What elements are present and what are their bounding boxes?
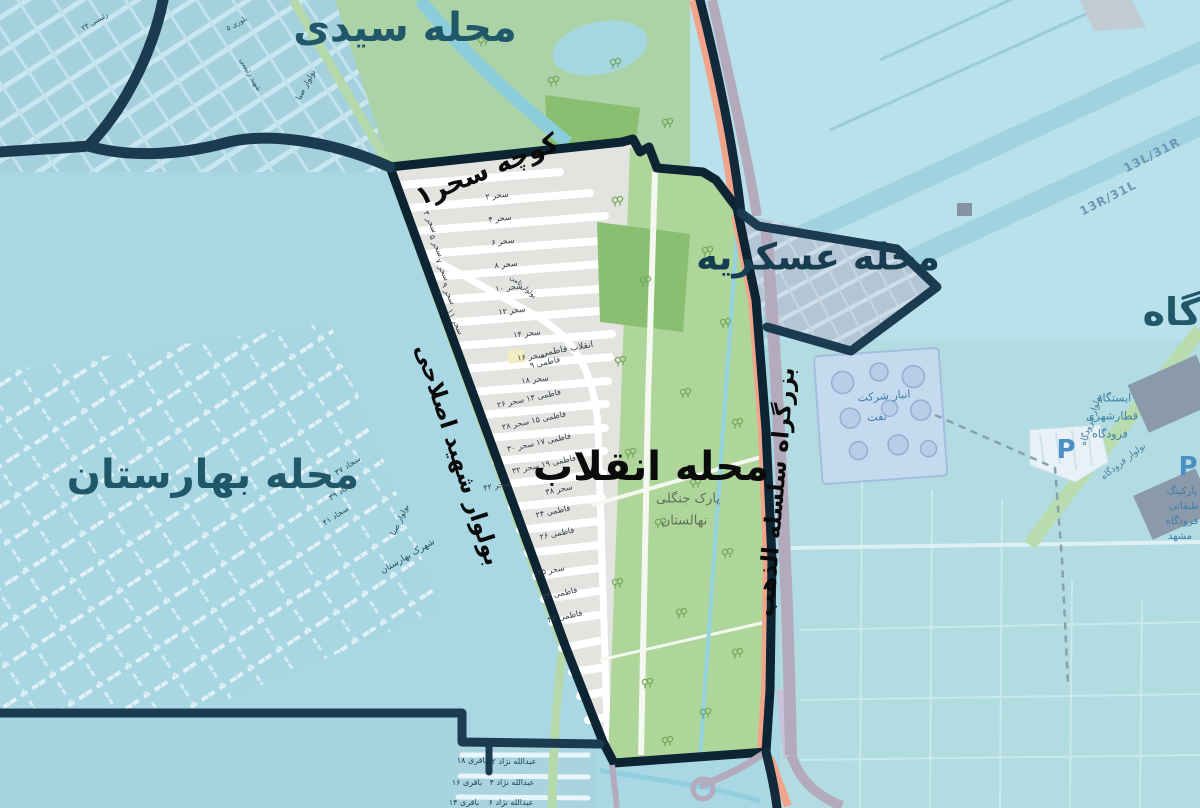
label-station-line2: قطارشهری: [1086, 411, 1138, 422]
street-label: باقری ۱۶: [452, 779, 482, 787]
map-viewport[interactable]: محله سیدی محله عسکریه محله انقلاب محله ب…: [0, 0, 1200, 808]
street-label: باقری ۱۸: [457, 757, 487, 765]
label-station-line1: ایستگاه: [1097, 393, 1131, 404]
label-mahalleh-baharestan: محله بهارستان: [67, 455, 359, 495]
label-station-line3: فرودگاه: [1092, 429, 1128, 440]
label-oil-depot-line1: انبار شرکت: [857, 389, 911, 404]
label-parking-line4: مشهد: [1168, 532, 1192, 542]
parking-p-icon: P: [1056, 437, 1075, 463]
label-park-line1: پارک جنگلی: [656, 493, 720, 506]
label-mahalleh-seyyedi: محله سیدی: [293, 8, 517, 48]
label-parking-line1: پارکینگ: [1167, 487, 1197, 497]
label-oil-depot-line2: نفت: [867, 411, 887, 423]
label-parking-line2: طبقاتی: [1169, 502, 1199, 512]
street-label: عبدالله نژاد ۴: [490, 779, 535, 787]
label-mahalleh-enghelab: محله انقلاب: [533, 447, 769, 487]
street-label: باقری ۱۴: [449, 799, 479, 807]
map-canvas[interactable]: [0, 0, 1200, 808]
street-label: عبدالله نژاد ۶: [489, 799, 534, 807]
parking-p-icon: P: [1178, 454, 1197, 480]
label-partial-gah: گاه: [1143, 293, 1200, 331]
street-label: عبدالله نژاد ۲: [492, 758, 537, 766]
label-park-line2: نهالستان: [661, 515, 708, 528]
label-mahalleh-askariyeh: محله عسکریه: [696, 239, 940, 276]
small-building: [957, 203, 972, 216]
label-parking-line3: فرودگاه: [1166, 517, 1199, 527]
